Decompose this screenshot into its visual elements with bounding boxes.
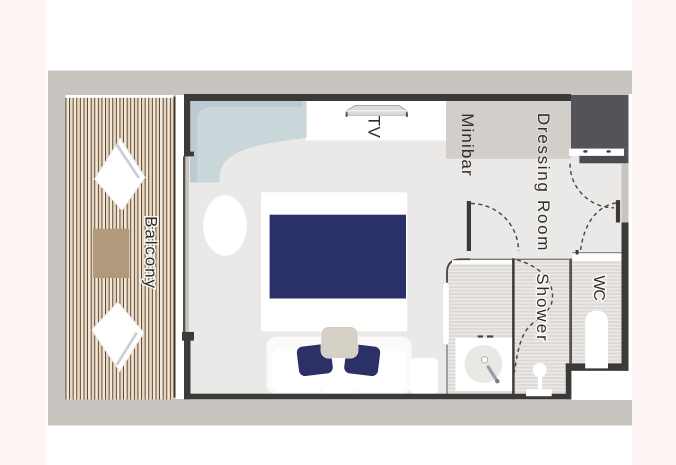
svg-text:TV: TV: [365, 116, 384, 139]
svg-text:Minibar: Minibar: [458, 113, 477, 176]
svg-text:Balcony: Balcony: [141, 216, 160, 290]
svg-text:Shower: Shower: [533, 273, 552, 343]
svg-text:WC: WC: [590, 275, 607, 300]
svg-text:Dressing Room: Dressing Room: [534, 113, 553, 252]
